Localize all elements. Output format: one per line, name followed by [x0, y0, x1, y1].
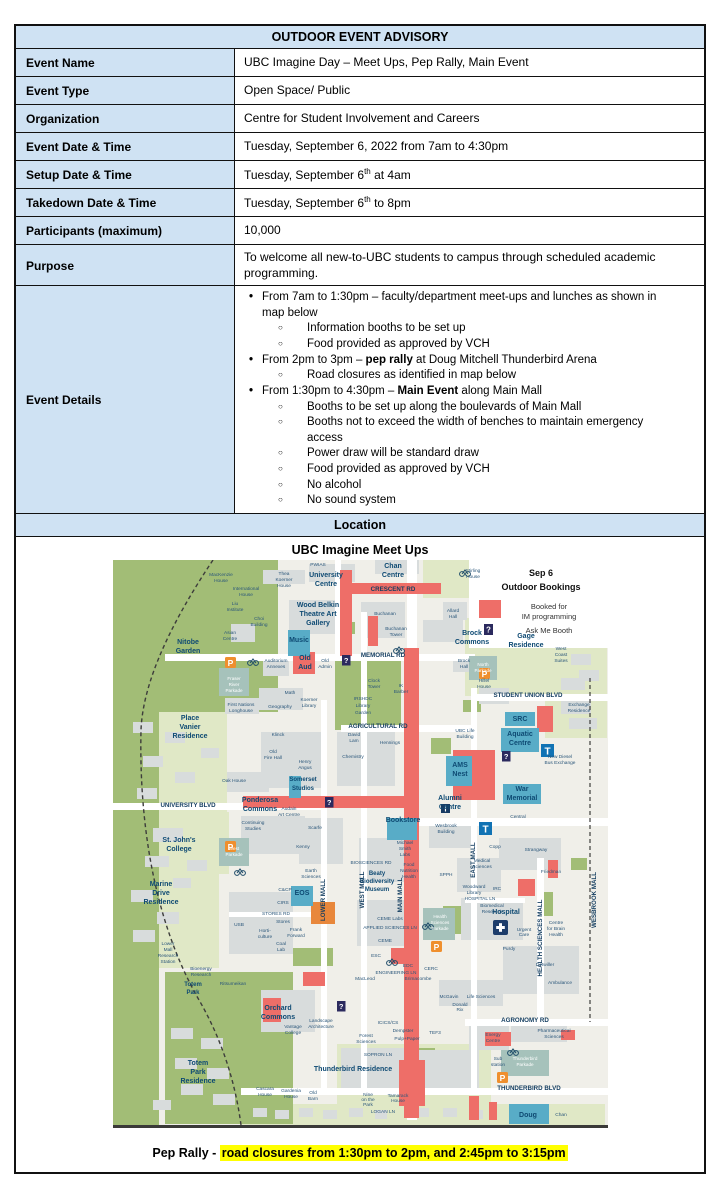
building-block: [443, 1108, 457, 1117]
building-label: Centre: [548, 920, 563, 926]
place-label: Residence: [508, 642, 543, 649]
building-label: Garden: [355, 710, 371, 716]
place-label: Alumni: [438, 795, 462, 802]
place-label: Garden: [175, 648, 200, 655]
building-label: Liu: [231, 601, 238, 607]
building-label: Hall: [459, 664, 467, 670]
building-label: Longhouse: [229, 708, 253, 714]
building-label: BIOSCIENCES RD: [350, 860, 392, 866]
building-label: Hillel: [478, 678, 488, 684]
building-label: Koerner: [275, 577, 292, 583]
place-label: Ponderosa: [241, 797, 277, 804]
row-value: UBC Imagine Day – Meet Ups, Pep Rally, M…: [234, 49, 704, 76]
place-label: Memorial: [506, 795, 537, 802]
building-label: Park: [363, 1102, 373, 1108]
row-value: Tuesday, September 6th at 4am: [234, 161, 704, 188]
place-label: Chan: [384, 563, 402, 570]
building-label: APPLIED SCIENCES LN: [363, 925, 417, 931]
building-block: [173, 878, 191, 888]
askme-booth-icon: ?: [342, 655, 351, 666]
building-label: Institute: [226, 607, 243, 613]
building-label: Asian: [224, 630, 236, 636]
building-label: Brock: [457, 658, 470, 664]
booked-area: [303, 972, 325, 986]
building-label: station: [490, 1062, 504, 1068]
place-label: EOS: [294, 890, 309, 897]
building-label: Care: [518, 932, 529, 938]
parkade-label: West: [228, 846, 239, 851]
building-label: Chan: [555, 1112, 567, 1118]
map-label: ?: [338, 1002, 343, 1011]
bullet-item: From 7am to 1:30pm – faculty/department …: [244, 290, 678, 321]
building-label: PWIAS: [310, 562, 325, 568]
park-area: [431, 738, 451, 754]
road-label-vertical: LOWER MALL: [320, 879, 327, 921]
building-label: Library: [466, 890, 481, 896]
askme-booth-icon: ?: [325, 797, 334, 808]
building-label: IK: [398, 683, 403, 689]
campus-map: Sep 6Outdoor BookingsBooked forIM progra…: [113, 560, 608, 1128]
pep-rally-caption: Pep Rally - road closures from 1:30pm to…: [16, 1146, 704, 1172]
building-label: Purdy: [502, 946, 515, 952]
place-label: Aud: [298, 664, 312, 671]
building-label: Pulp+Paper: [394, 1036, 420, 1042]
row-value: Centre for Student Involvement and Caree…: [234, 105, 704, 132]
place-label: War: [515, 786, 528, 793]
parkade-icon: P: [497, 1072, 508, 1083]
place-label: Commons: [242, 806, 276, 813]
building-label: Library: [355, 703, 370, 709]
building-label: Tower: [389, 632, 402, 638]
building-label: IRSHDC: [353, 696, 372, 702]
table-title: OUTDOOR EVENT ADVISORY: [16, 26, 704, 49]
building-label: Klinck: [271, 732, 284, 738]
table-row: OrganizationCentre for Student Involveme…: [16, 105, 704, 133]
building-block: [133, 722, 153, 733]
building-label: Annexes: [266, 664, 285, 670]
building-label: Pharmaceutical: [537, 1028, 570, 1034]
building-label: SPPH: [439, 872, 453, 878]
parkade-label: Sciences: [430, 920, 449, 925]
map-cell: UBC Imagine Meet Ups Sep 6Outdoor Bookin…: [16, 537, 704, 1172]
building-label: Ritsumeikan: [219, 981, 246, 987]
building-label: Buchanan: [385, 626, 407, 632]
building-label: Lower: [161, 941, 174, 947]
road-label: UNIVERSITY BLVD: [160, 802, 216, 809]
legend-booked-label: Booked for: [530, 602, 567, 611]
building-label: Fire Hall: [264, 755, 282, 761]
building-label: Suites: [554, 658, 568, 664]
building-label: Henry: [298, 759, 311, 765]
building-block: [299, 1108, 313, 1117]
parkade-label: Health: [433, 914, 447, 919]
building-label: Math: [284, 690, 295, 696]
caption-highlight: road closures from 1:30pm to 2pm, and 2:…: [220, 1145, 568, 1161]
road-label-vertical: MAIN MALL: [397, 877, 404, 912]
place-label: AMS: [452, 762, 468, 769]
row-value: Tuesday, September 6, 2022 from 7am to 4…: [234, 133, 704, 160]
map-row: UBC Imagine Meet Ups Sep 6Outdoor Bookin…: [16, 537, 704, 1172]
building-label: House: [277, 583, 291, 589]
building-label: Koerner: [300, 697, 317, 703]
building-label: Stirling: [465, 568, 480, 574]
building-label: IRC: [492, 886, 501, 892]
building-label: Building: [456, 734, 473, 740]
table-row: Event Date & TimeTuesday, September 6, 2…: [16, 133, 704, 161]
building-label: Sciences: [544, 1034, 564, 1040]
place-label: Orchard: [264, 1005, 291, 1012]
building-label: Research: [190, 972, 211, 978]
place-label: Centre: [508, 740, 530, 747]
building-label: Gardenia: [281, 1088, 301, 1094]
map-label: P: [433, 942, 439, 952]
building-label: Earth: [305, 868, 317, 874]
building-label: Research: [157, 953, 178, 959]
place-label: Brock: [462, 630, 482, 637]
building-block: [181, 1084, 203, 1095]
parkade-label: Parkade: [225, 852, 243, 857]
building-label: Woodward: [462, 884, 485, 890]
building-label: STORES RD: [262, 911, 290, 917]
building-label: Oak House: [222, 778, 246, 784]
booked-area: [404, 648, 419, 1118]
building-label: Smith: [398, 846, 411, 852]
building-label: Old: [321, 658, 329, 664]
building-label: Forest: [359, 1033, 373, 1039]
map-label: ?: [326, 798, 331, 807]
road: [165, 654, 475, 661]
road: [361, 612, 367, 1090]
building-label: Lam: [349, 738, 358, 744]
building-label: Michael: [396, 840, 413, 846]
building-label: culture: [257, 934, 272, 940]
building-label: CEME Labs: [377, 916, 403, 922]
building-label: Sciences: [356, 1039, 376, 1045]
building-label: West: [555, 646, 567, 652]
place-label: Somerset: [289, 777, 316, 783]
askme-booth-icon: ?: [337, 1001, 346, 1012]
building-label: House: [466, 574, 480, 580]
building-label: Strangway: [524, 847, 547, 853]
table-row: PurposeTo welcome all new-to-UBC student…: [16, 245, 704, 286]
map-label: ?: [343, 656, 348, 665]
building-block: [175, 772, 195, 783]
road-label: MEMORIAL RD: [360, 652, 405, 659]
place-label: Thunderbird Residence: [313, 1066, 391, 1073]
building-label: International: [232, 586, 258, 592]
event-details-row: Event Details From 7am to 1:30pm – facul…: [16, 286, 704, 514]
place-label: Aquatic: [507, 731, 533, 738]
road-label-vertical: WESBROOK MALL: [591, 872, 598, 928]
road-label-vertical: EAST MALL: [470, 842, 477, 878]
building-label: LOGAN LN: [370, 1109, 395, 1115]
building-label: HOSPITAL LN: [464, 896, 495, 902]
parkade-label: Fraser: [227, 676, 241, 681]
place-label: Nest: [452, 771, 468, 778]
building-label: Hennings: [379, 740, 400, 746]
bullet-item: From 2pm to 3pm – pep rally at Doug Mitc…: [244, 353, 678, 369]
campus-map-svg: Sep 6Outdoor BookingsBooked forIM progra…: [113, 560, 608, 1125]
building-label: Centre: [485, 1038, 500, 1044]
building-label: Station: [160, 959, 175, 965]
place-label: Residence: [172, 733, 207, 740]
legend-heading: Outdoor Bookings: [501, 582, 580, 592]
legend-date: Sep 6: [528, 568, 552, 578]
map-label: P: [227, 658, 233, 668]
building-label: SOPRON LN: [363, 1052, 392, 1058]
building-label: Brimacombe: [404, 976, 431, 982]
building-label: Continuing: [241, 820, 264, 826]
map-legend: Sep 6Outdoor BookingsBooked forIM progra…: [469, 560, 608, 648]
row-label: Event Details: [16, 286, 234, 513]
building-label: Energy: [485, 1032, 501, 1038]
place-label: SRC: [512, 716, 527, 723]
table-row: Setup Date & TimeTuesday, September 6th …: [16, 161, 704, 189]
building-label: Labs: [399, 852, 410, 858]
building-block: [133, 930, 155, 942]
place-label: Drive: [152, 890, 170, 897]
building-label: Bioenergy: [190, 966, 212, 972]
map-label: T: [482, 824, 488, 835]
place-label: Park: [190, 1069, 205, 1076]
building-label: Life Sciences: [466, 994, 495, 1000]
bullet-item: From 1:30pm to 4:30pm – Main Event along…: [244, 384, 678, 400]
building-block: [171, 1028, 193, 1039]
advisory-table: OUTDOOR EVENT ADVISORY Event NameUBC Ima…: [14, 24, 706, 1174]
place-label: Place: [180, 715, 198, 722]
row-label: Takedown Date & Time: [16, 189, 234, 216]
place-label: Old: [299, 655, 311, 662]
building-label: Studies: [245, 826, 262, 832]
building-label: Research: [481, 909, 502, 915]
building-label: Horti-: [259, 928, 271, 934]
place-label: Totem: [184, 982, 202, 988]
building-block: [571, 654, 591, 665]
place-label: Commons: [260, 1014, 294, 1021]
event-details-list: From 7am to 1:30pm – faculty/department …: [244, 290, 678, 509]
building-label: Old: [269, 749, 277, 755]
building-block: [137, 788, 157, 799]
row-value: From 7am to 1:30pm – faculty/department …: [234, 286, 704, 513]
building-block: [153, 1100, 171, 1110]
building-label: Barber: [393, 689, 408, 695]
building-label: Forward: [287, 933, 305, 939]
building-label: Kenny: [296, 844, 310, 850]
sub-bullet-item: Power draw will be standard draw: [244, 446, 678, 462]
road-label-vertical: WEST MALL: [359, 871, 366, 908]
table-rows: Event NameUBC Imagine Day – Meet Ups, Pe…: [16, 49, 704, 286]
building-label: Geography: [268, 704, 292, 710]
row-label: Organization: [16, 105, 234, 132]
building-label: Exchange: [568, 702, 590, 708]
building-label: Admin: [318, 664, 332, 670]
map-label: ?: [503, 752, 508, 761]
building-label: Mall: [163, 947, 172, 953]
building-block: [579, 670, 599, 681]
building-label: House: [239, 592, 253, 598]
building-label: McGavin: [439, 994, 458, 1000]
building-label: New Diesel: [547, 754, 571, 760]
building-label: Ambulance: [548, 980, 572, 986]
sub-bullet-item: No sound system: [244, 493, 678, 509]
place-label: Doug: [519, 1112, 537, 1119]
booked-area: [469, 1096, 479, 1120]
building-label: Bus Exchange: [544, 760, 575, 766]
building-block: [275, 1110, 289, 1119]
row-label: Participants (maximum): [16, 217, 234, 244]
building-label: MacLeod: [355, 976, 375, 982]
sub-bullet-item: Road closures as identified in map below: [244, 368, 678, 384]
building-label: for Brain: [546, 926, 564, 932]
booked-area: [489, 1102, 497, 1120]
building-block: [569, 718, 597, 729]
sub-bullet-item: Information booths to be set up: [244, 321, 678, 337]
place-label: Music: [289, 637, 309, 644]
building-label: Coast: [554, 652, 567, 658]
place-label: Park: [186, 990, 200, 996]
building-label: House: [258, 1092, 272, 1098]
row-label: Event Name: [16, 49, 234, 76]
place-label: Theatre Art: [299, 611, 337, 618]
road-label: AGRONOMY RD: [501, 1017, 549, 1024]
building-label: USB: [234, 922, 244, 928]
building-block: [349, 1108, 363, 1117]
place-label: Totem: [187, 1060, 207, 1067]
building-label: Art Centre: [278, 812, 300, 818]
sub-bullet-item: No alcohol: [244, 478, 678, 494]
place-label: Gage: [517, 633, 535, 640]
road-label-vertical: HEALTH SCIENCES MALL: [537, 899, 544, 976]
park-area: [335, 658, 401, 730]
place-label: College: [166, 846, 191, 853]
booked-area: [368, 616, 378, 646]
parkade-label: North: [477, 662, 489, 667]
building-label: Health: [549, 932, 563, 938]
building-label: Cascara: [256, 1086, 274, 1092]
road-label: CRESCENT RD: [370, 586, 415, 593]
building-label: Frank: [289, 927, 302, 933]
row-label: Event Date & Time: [16, 133, 234, 160]
parkade-label: Parkade: [225, 688, 243, 693]
building-label: Wesbrook: [435, 823, 457, 829]
building-label: Dempster: [392, 1028, 413, 1034]
booked-area: [537, 706, 553, 732]
building-label: Audain: [281, 806, 296, 812]
place-label: Bookstore: [385, 817, 420, 824]
row-label: Event Type: [16, 77, 234, 104]
parkade-label: Thunderbird: [512, 1056, 537, 1061]
building-label: House: [214, 578, 228, 584]
building-block: [201, 748, 219, 758]
place-label: Marine: [149, 881, 172, 888]
building-label: House: [477, 684, 491, 690]
place-label: Studios: [292, 786, 315, 792]
building-block: [253, 1108, 267, 1117]
building-label: Thea: [278, 571, 289, 577]
row-value: To welcome all new-to-UBC students to ca…: [234, 245, 704, 285]
building-label: Residence: [567, 708, 590, 714]
park-area: [571, 858, 587, 870]
place-label: Gallery: [306, 620, 330, 627]
booked-area: [518, 879, 535, 896]
map-title: UBC Imagine Meet Ups: [16, 543, 704, 557]
place-label: Centre: [438, 804, 460, 811]
building-label: Rix: [456, 1007, 464, 1013]
building-label: House: [391, 1098, 405, 1104]
building-label: Library: [301, 703, 316, 709]
place-label: Wood Belkin: [296, 602, 338, 609]
building-label: Auditorium: [264, 658, 287, 664]
building-label: Old: [309, 1090, 317, 1096]
building-label: CEME: [378, 938, 392, 944]
building-label: Health: [402, 874, 416, 880]
sub-bullet-item: Booths not to exceed the width of benche…: [244, 415, 678, 446]
building-label: Barn: [307, 1096, 317, 1102]
building-label: ICICS/CS: [377, 1020, 398, 1026]
place-label: Centre: [314, 581, 336, 588]
building-label: Choi: [254, 616, 264, 622]
parkade-label: Parkade: [516, 1062, 534, 1067]
sub-bullet-item: Food provided as approved by VCH: [244, 337, 678, 353]
building-label: Buchanan: [374, 611, 396, 617]
sub-bullet-item: Food provided as approved by VCH: [244, 462, 678, 478]
building-block: [213, 1094, 235, 1105]
place-label: Nitobe: [177, 639, 199, 646]
building-label: Scarfe: [308, 825, 322, 831]
road-label: THUNDERBIRD BLVD: [497, 1085, 561, 1092]
table-row: Takedown Date & TimeTuesday, September 6…: [16, 189, 704, 217]
building-label: Sub: [493, 1056, 502, 1062]
building-label: EDC: [402, 963, 413, 969]
row-label: Purpose: [16, 245, 234, 285]
building-block: [157, 912, 179, 924]
building-label: Sciences: [301, 874, 321, 880]
table-row: Event TypeOpen Space/ Public: [16, 77, 704, 105]
building-label: House: [284, 1094, 298, 1100]
building-label: Hall: [448, 614, 456, 620]
building-label: Building: [437, 829, 454, 835]
askme-booth-icon: ?: [502, 751, 511, 762]
place-label: St. John's: [162, 837, 195, 844]
building-label: Angus: [298, 765, 312, 771]
row-value: 10,000: [234, 217, 704, 244]
building-label: Lab: [276, 947, 284, 953]
building-label: David: [347, 732, 360, 738]
building-label: Friedman: [540, 869, 561, 875]
building-label: Central: [510, 814, 525, 820]
question-icon: ?: [486, 625, 491, 634]
row-value: Tuesday, September 6th to 8pm: [234, 189, 704, 216]
building-label: College: [284, 1030, 301, 1036]
building-label: Tower: [367, 684, 380, 690]
road-label: AGRICULTURAL RD: [348, 723, 408, 730]
building-label: ESC: [371, 953, 381, 959]
booked-area: [340, 570, 352, 656]
sub-bullet-item: Booths to be set up along the boulevards…: [244, 400, 678, 416]
location-header: Location: [16, 514, 704, 537]
building-label: Food: [403, 862, 414, 868]
building-label: MacKenzie: [209, 572, 233, 578]
parkade-label: Parkade: [474, 668, 492, 673]
parkade-icon: P: [225, 657, 236, 668]
building-block: [323, 1110, 337, 1119]
building-label: Allard: [446, 608, 459, 614]
building-label: Stores: [276, 919, 290, 925]
place-label: Residence: [143, 899, 178, 906]
parkade-label: Parkade: [431, 926, 449, 931]
hospital-icon: [493, 920, 508, 935]
legend-booked-swatch: [479, 600, 501, 618]
